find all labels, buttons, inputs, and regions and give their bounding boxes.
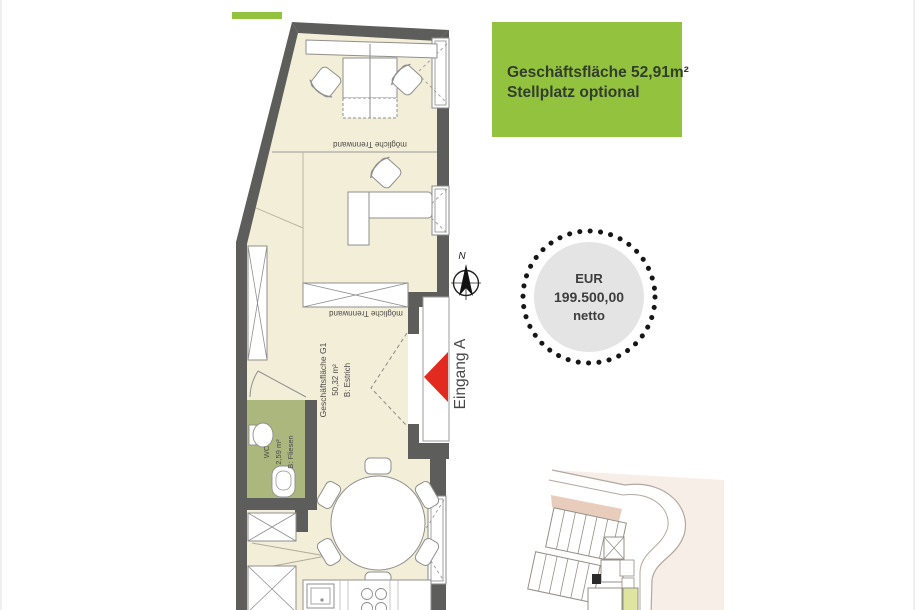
- desk-return: [348, 192, 369, 245]
- info-box-line1: Geschäftsfläche 52,91m²: [507, 64, 689, 81]
- site-plan-building: [622, 578, 634, 588]
- partition-label-middle: mögliche Trennwand: [329, 309, 403, 318]
- site-plan-marker: [592, 574, 601, 584]
- wall-wc-bottom: [236, 498, 297, 510]
- price-amount: 199.500,00: [554, 289, 624, 305]
- wall-right-lower-b: [430, 583, 446, 610]
- main-room-area: 50,32 m²: [331, 364, 340, 396]
- window-2: [432, 186, 449, 235]
- partition-box: [303, 283, 408, 307]
- listing-graphic: mögliche Trennwand mögliche Trennwand Ge…: [0, 0, 915, 610]
- site-plan: [528, 470, 724, 610]
- partition-label-top: mögliche Trennwand: [333, 140, 407, 149]
- listing-page: mögliche Trennwand mögliche Trennwand Ge…: [0, 0, 915, 610]
- wc-area: 2,59 m²: [274, 439, 283, 465]
- entrance-label: Eingang A: [452, 338, 469, 409]
- site-plan-unit-highlight: [623, 588, 638, 610]
- wall-entrance-left-b: [408, 424, 419, 445]
- kitchen-faucet: [320, 598, 323, 601]
- price-badge: EUR 199.500,00 netto: [523, 231, 655, 363]
- compass-north-label: N: [458, 251, 466, 262]
- floor-plan: mögliche Trennwand mögliche Trennwand Ge…: [236, 22, 449, 610]
- price-suffix: netto: [573, 308, 605, 323]
- wall-wc-right: [305, 400, 317, 510]
- site-plan-building: [620, 560, 634, 576]
- wc-name: WC: [262, 445, 271, 458]
- wall-entrance-jamb-bottom: [408, 443, 449, 459]
- wall-cabinet: [248, 246, 267, 360]
- main-room-name: Geschäftsfläche G1: [318, 342, 328, 417]
- kitchen: [303, 580, 431, 610]
- site-plan-building: [588, 588, 622, 610]
- info-box-line2: Stellplatz optional: [507, 84, 640, 101]
- wc-floor-label: B: Fliesen: [286, 435, 295, 468]
- info-box: Geschäftsfläche 52,91m² Stellplatz optio…: [492, 22, 689, 137]
- wall-pillar: [295, 498, 308, 532]
- dining-table: [331, 476, 425, 570]
- wc-sink: [253, 423, 273, 447]
- accent-bar: [232, 12, 282, 19]
- price-currency: EUR: [575, 271, 603, 286]
- wall-entrance-left-a: [408, 307, 419, 334]
- compass-icon: N: [451, 251, 481, 300]
- main-room-floor: B: Estrich: [343, 363, 352, 397]
- dining-chair: [365, 458, 391, 474]
